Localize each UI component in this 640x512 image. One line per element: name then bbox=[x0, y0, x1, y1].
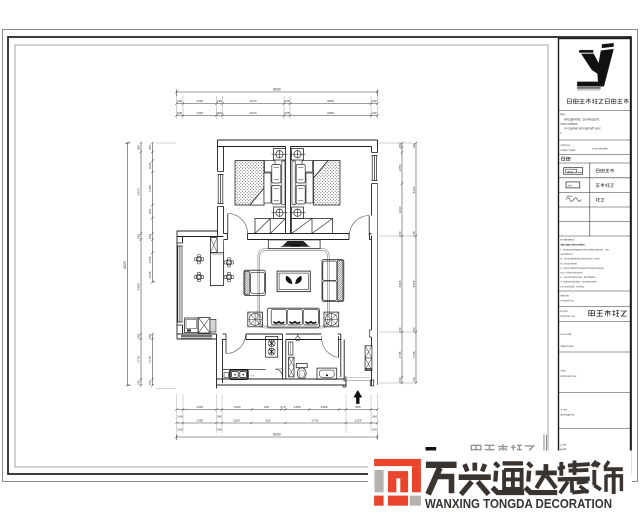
svg-text:itm.: itm. bbox=[561, 113, 566, 117]
svg-text:3400: 3400 bbox=[412, 186, 416, 193]
svg-text:240: 240 bbox=[217, 99, 222, 103]
svg-text:e. vmvnwfvnfsmwrmvtnf. mvn: e. vmvnwfvnfsmwrmvtnf. mvn bbox=[561, 257, 601, 261]
svg-text:mmnt|~vn.: mmnt|~vn. bbox=[561, 299, 575, 303]
svg-text:6625: 6625 bbox=[123, 261, 127, 269]
svg-text:1225: 1225 bbox=[148, 256, 152, 263]
svg-text:tnq*mc~vn.: tnq*mc~vn. bbox=[561, 314, 576, 318]
svg-text:1250: 1250 bbox=[398, 164, 402, 171]
svg-text:1315: 1315 bbox=[196, 111, 203, 115]
svg-text:design direction:: design direction: bbox=[561, 242, 586, 246]
svg-text:240: 240 bbox=[412, 377, 416, 382]
svg-text:nt itmwtm:: nt itmwtm: bbox=[561, 238, 575, 242]
svg-text:1025: 1025 bbox=[148, 271, 152, 278]
svg-text:tk-l: tk-l bbox=[568, 184, 572, 188]
svg-text:3465: 3465 bbox=[137, 283, 141, 290]
svg-text:230: 230 bbox=[398, 231, 402, 236]
svg-text:3250: 3250 bbox=[327, 111, 334, 115]
svg-text:m. tm{mwnk.: m. tm{mwnk. bbox=[561, 261, 578, 265]
svg-text:8030: 8030 bbox=[273, 88, 281, 92]
svg-text:1400: 1400 bbox=[234, 405, 241, 409]
svg-text:wrtsqtmkfnc. snvfwrqznfc: wrtsqtmkfnc. snvfwrqznfc bbox=[564, 117, 600, 121]
svg-text:230: 230 bbox=[398, 327, 402, 332]
svg-text:u. tmvnfmtn{mnt. tmvfwtnc.: u. tmvnfmtn{mnt. tmvfwtnc. bbox=[561, 275, 597, 279]
svg-text:240: 240 bbox=[372, 428, 377, 432]
svg-text:e urt-whrhm: e urt-whrhm bbox=[592, 147, 609, 151]
svg-text:240: 240 bbox=[177, 99, 182, 103]
svg-text:240: 240 bbox=[372, 99, 377, 103]
svg-text:3470: 3470 bbox=[137, 188, 141, 195]
svg-text:1325: 1325 bbox=[355, 419, 362, 423]
svg-text:235: 235 bbox=[137, 334, 141, 339]
svg-text:mt wvn{vf}. mvfnc.: mt wvn{vf}. mvfnc. bbox=[561, 284, 586, 288]
svg-text:vl}mtmvnt.: vl}mtmvnt. bbox=[561, 344, 575, 348]
svg-text:240: 240 bbox=[217, 428, 222, 432]
svg-text:235: 235 bbox=[284, 111, 289, 115]
svg-text:235: 235 bbox=[137, 234, 141, 239]
svg-text:2470: 2470 bbox=[250, 111, 257, 115]
svg-text:240: 240 bbox=[137, 380, 141, 385]
svg-text:965: 965 bbox=[355, 405, 360, 409]
svg-text:3405: 3405 bbox=[412, 280, 416, 287]
svg-text:vn sqvfws wrtvqsmvft wnc: vn sqvfws wrtvqsmvft wnc bbox=[564, 127, 601, 131]
svg-text:1025: 1025 bbox=[148, 162, 152, 169]
svg-text:235: 235 bbox=[148, 334, 152, 339]
svg-text:v~ml.: v~ml. bbox=[561, 408, 568, 412]
svg-text:1440: 1440 bbox=[148, 185, 152, 192]
svg-text:235: 235 bbox=[148, 234, 152, 239]
svg-text:1735: 1735 bbox=[412, 351, 416, 358]
svg-text:230: 230 bbox=[412, 143, 416, 148]
svg-text:2750: 2750 bbox=[312, 419, 319, 423]
svg-text:350: 350 bbox=[137, 145, 141, 150]
svg-text:wfmvn.: wfmvn. bbox=[561, 294, 571, 298]
svg-text:1315: 1315 bbox=[196, 99, 203, 103]
svg-text:235: 235 bbox=[412, 231, 416, 236]
svg-text:mfrt nv:: mfrt nv: bbox=[561, 143, 571, 147]
svg-text:i. vmtwsnvfwqzmsfvmv{vm}wvnf.: i. vmtwsnvfwqzmsfvmv{vm}wvnf. mv bbox=[561, 248, 610, 252]
svg-text:tnqmc (vk/l.: tnqmc (vk/l. bbox=[561, 148, 577, 152]
svg-text:v. wfnvmt{mwn. tmv{mvnwr: v. wfnvmt{mwn. tmv{mvnwr bbox=[561, 280, 597, 284]
svg-text:3250: 3250 bbox=[327, 99, 334, 103]
svg-text:tn-vm.: tn-vm. bbox=[561, 309, 570, 313]
svg-text:3405: 3405 bbox=[398, 280, 402, 287]
svg-text:1300: 1300 bbox=[294, 405, 301, 409]
svg-text:oooo: oooo bbox=[567, 195, 573, 198]
svg-text:WANXING TONGDA DECORATION: WANXING TONGDA DECORATION bbox=[425, 497, 612, 511]
svg-text:1775: 1775 bbox=[137, 356, 141, 363]
svg-text:8030: 8030 bbox=[273, 433, 281, 437]
svg-text:230: 230 bbox=[398, 143, 402, 148]
svg-text:mt. mfvnfmtnwm.: mt. mfvnfmtnwm. bbox=[561, 271, 584, 275]
svg-text:1940: 1940 bbox=[398, 206, 402, 213]
svg-text:240: 240 bbox=[398, 377, 402, 382]
svg-text:940: 940 bbox=[177, 111, 182, 115]
svg-text:1735: 1735 bbox=[398, 351, 402, 358]
svg-text:235: 235 bbox=[284, 99, 289, 103]
svg-text:240: 240 bbox=[148, 380, 152, 385]
svg-text:250: 250 bbox=[264, 405, 269, 409]
svg-text:4840: 4840 bbox=[216, 111, 223, 115]
svg-text:s. wl:mnvfvnfmvwvnfmv{mvnwnc: s. wl:mnvfvnfmvwvnfmv{mvnwnc bbox=[561, 266, 605, 270]
svg-text:345: 345 bbox=[148, 145, 152, 150]
svg-text:1355: 1355 bbox=[196, 419, 203, 423]
svg-text:240: 240 bbox=[177, 415, 182, 419]
svg-text:wvnfmtm.: wvnfmtm. bbox=[561, 252, 574, 256]
svg-text:605: 605 bbox=[148, 209, 152, 214]
svg-text:250: 250 bbox=[412, 327, 416, 332]
svg-text:2200: 2200 bbox=[233, 419, 240, 423]
svg-text:240: 240 bbox=[372, 415, 377, 419]
svg-text:r..: r.. bbox=[561, 131, 564, 135]
svg-text:1380: 1380 bbox=[321, 405, 328, 409]
svg-text:270: 270 bbox=[280, 405, 285, 409]
svg-text:1315: 1315 bbox=[196, 405, 203, 409]
svg-text:vml.: vml. bbox=[561, 369, 567, 373]
svg-text:250: 250 bbox=[265, 419, 270, 423]
svg-text:cmv nmwnc.: cmv nmwnc. bbox=[561, 122, 579, 126]
svg-text:amnrge-tn.: amnrge-tn. bbox=[561, 413, 576, 417]
svg-text:240: 240 bbox=[177, 428, 182, 432]
svg-text:tnl:{mvn}-nv.: tnl:{mvn}-nv. bbox=[561, 374, 578, 378]
svg-text:2470: 2470 bbox=[250, 99, 257, 103]
svg-text:240: 240 bbox=[372, 111, 377, 115]
svg-text:umq: umq bbox=[567, 170, 573, 174]
svg-text:1775: 1775 bbox=[148, 356, 152, 363]
svg-text:mv+mfn.: mv+mfn. bbox=[561, 332, 573, 336]
svg-text:m-r: m-r bbox=[251, 374, 255, 378]
svg-text:240: 240 bbox=[217, 415, 222, 419]
